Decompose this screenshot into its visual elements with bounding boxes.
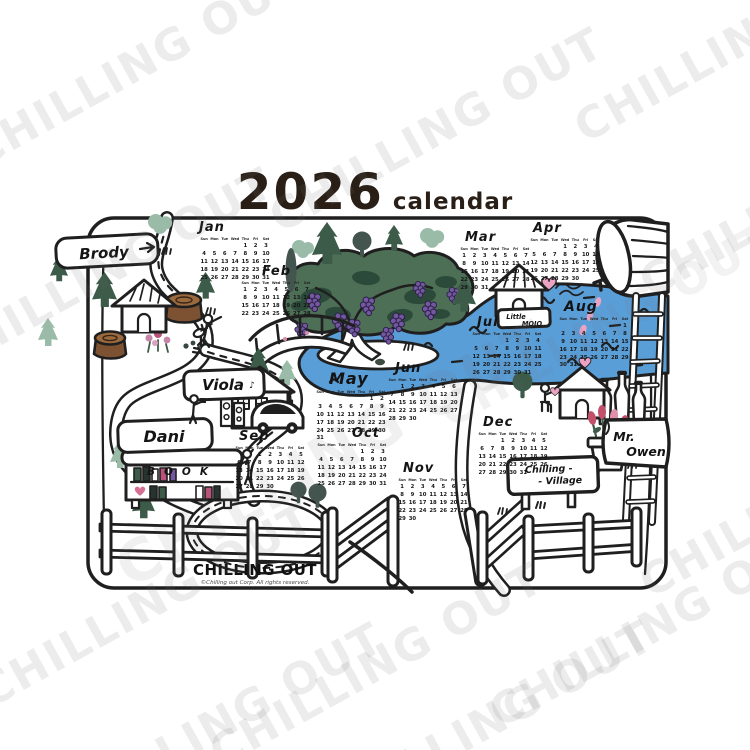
calendar-nov: Nov SunMonTueWedThuFriSat123456789101112… [397, 461, 469, 523]
day-cell: 12 [529, 260, 539, 268]
day-cell: 3 [261, 243, 271, 251]
day-cell: 5 [209, 251, 219, 259]
day-cell: 2 [512, 338, 522, 346]
day-cell: 12 [438, 392, 448, 400]
day-cell: 21 [487, 462, 497, 470]
month-grid: SunMonTueWedThuFriSat1234567891011121314… [387, 378, 459, 423]
day-cell: 27 [449, 408, 459, 416]
day-cell: 20 [477, 462, 487, 470]
day-cell: 5 [438, 484, 448, 492]
book-store [122, 450, 242, 508]
month-grid: SunMonTueWedThuFriSat1234567891011121314… [477, 432, 549, 477]
day-cell: 5 [500, 253, 510, 261]
month-grid: SunMonTueWedThuFriSat1234567891011121314… [234, 446, 306, 491]
day-cell: 3 [568, 331, 578, 339]
speakers [221, 398, 244, 426]
day-cell [599, 362, 609, 370]
day-cell: 10 [378, 457, 388, 465]
day-cell: 16 [377, 412, 387, 420]
day-cell: 10 [261, 295, 271, 303]
day-cell: 2 [558, 331, 568, 339]
day-cell: 10 [580, 252, 590, 260]
day-cell: 14 [347, 465, 357, 473]
day-cell: 25 [428, 508, 438, 516]
day-cell: 26 [529, 276, 539, 284]
day-cell: 4 [316, 457, 326, 465]
day-cell: 16 [570, 260, 580, 268]
sign-mr-owen-line1: Mr. [613, 429, 635, 444]
day-cell: 14 [487, 454, 497, 462]
day-cell [529, 244, 539, 252]
day-cell: 23 [265, 476, 275, 484]
month-title: Oct [352, 426, 388, 441]
day-cell: 24 [480, 277, 490, 285]
sign-book-label: BOOK [147, 466, 217, 478]
day-cell: 29 [498, 470, 508, 478]
day-cell: 11 [591, 252, 601, 260]
day-cell: 22 [502, 362, 512, 370]
day-cell: 13 [220, 259, 230, 267]
day-cell: 21 [230, 267, 240, 275]
day-cell: 18 [271, 303, 281, 311]
month-grid: SunMonTueWedThuFriSat1234567891011121314… [240, 281, 312, 319]
day-cell [230, 243, 240, 251]
day-cell: 1 [397, 384, 407, 392]
day-cell: 18 [579, 347, 589, 355]
day-cell: 15 [357, 465, 367, 473]
day-cell: 3 [480, 253, 490, 261]
day-cell: 1 [255, 452, 265, 460]
day-cell: 29 [620, 355, 630, 363]
day-cell: 5 [281, 287, 291, 295]
day-cell: 5 [326, 457, 336, 465]
month-grid: SunMonTueWedThuFriSat1234567891011121314… [397, 478, 469, 523]
day-cell: 13 [346, 412, 356, 420]
day-cell: 30 [558, 362, 568, 370]
day-cell: 24 [580, 268, 590, 276]
day-cell: 2 [250, 287, 260, 295]
day-cell: 4 [490, 253, 500, 261]
day-cell: 11 [428, 492, 438, 500]
day-cell [448, 516, 458, 524]
day-cell: 30 [265, 484, 275, 492]
day-cell: 19 [539, 454, 549, 462]
calendar-jun: Jun SunMonTueWedThuFriSat123456789101112… [387, 361, 459, 423]
day-cell: 17 [480, 269, 490, 277]
day-cell: 29 [502, 370, 512, 378]
calendar-aug: Aug SunMonTueWedThuFriSat123456789101112… [558, 299, 630, 370]
day-cell [428, 516, 438, 524]
day-cell: 19 [438, 500, 448, 508]
day-cell: 14 [609, 339, 619, 347]
day-cell: 21 [347, 473, 357, 481]
day-cell: 9 [367, 457, 377, 465]
day-cell: 21 [550, 268, 560, 276]
day-cell: 31 [522, 370, 532, 378]
day-cell: 15 [502, 354, 512, 362]
day-cell: 24 [261, 311, 271, 319]
day-cell: 17 [568, 347, 578, 355]
day-cell: 28 [459, 508, 469, 516]
day-cell: 4 [325, 404, 335, 412]
day-cell: 6 [539, 252, 549, 260]
day-cell: 30 [407, 516, 417, 524]
day-cell: 4 [591, 244, 601, 252]
day-cell: 13 [337, 465, 347, 473]
day-cell: 26 [589, 355, 599, 363]
day-cell: 31 [480, 285, 490, 293]
day-cell: 14 [302, 295, 312, 303]
day-cell: 6 [337, 457, 347, 465]
day-cell: 4 [533, 338, 543, 346]
day-cell: 12 [471, 354, 481, 362]
day-cell [609, 323, 619, 331]
day-cell: 20 [448, 500, 458, 508]
day-cell: 23 [250, 311, 260, 319]
day-cell [589, 323, 599, 331]
day-cell: 30 [570, 276, 580, 284]
day-cell: 8 [620, 331, 630, 339]
day-cell: 9 [570, 252, 580, 260]
day-cell: 13 [510, 261, 520, 269]
day-cell: 14 [244, 468, 254, 476]
day-cell: 8 [240, 295, 250, 303]
day-cell: 17 [522, 354, 532, 362]
day-cell: 15 [366, 412, 376, 420]
calendar-dec: Dec SunMonTueWedThuFriSat123456789101112… [477, 415, 549, 477]
day-cell: 12 [500, 261, 510, 269]
day-cell: 28 [302, 311, 312, 319]
day-cell: 17 [275, 468, 285, 476]
day-cell: 7 [302, 287, 312, 295]
day-cell: 25 [271, 311, 281, 319]
day-cell: 9 [250, 251, 260, 259]
day-cell: 7 [356, 404, 366, 412]
day-cell: 3 [418, 484, 428, 492]
day-cell: 14 [356, 412, 366, 420]
day-cell: 11 [579, 339, 589, 347]
day-cell: 27 [539, 276, 549, 284]
day-cell: 27 [337, 481, 347, 489]
day-cell: 7 [347, 457, 357, 465]
day-cell: 2 [408, 384, 418, 392]
day-cell: 25 [591, 268, 601, 276]
day-cell [539, 470, 549, 478]
day-cell [234, 452, 244, 460]
day-cell: 25 [316, 481, 326, 489]
day-cell [550, 244, 560, 252]
day-cell: 13 [539, 260, 549, 268]
day-cell: 26 [471, 370, 481, 378]
day-cell: 16 [265, 468, 275, 476]
day-cell: 9 [512, 346, 522, 354]
day-cell: 6 [448, 484, 458, 492]
day-cell: 23 [367, 473, 377, 481]
day-cell: 21 [492, 362, 502, 370]
day-cell: 7 [609, 331, 619, 339]
day-cell: 3 [522, 338, 532, 346]
day-cell [347, 449, 357, 457]
day-cell [356, 396, 366, 404]
day-cell [326, 449, 336, 457]
calendar-poster-page: Brody Viola Dani BOOK Little MOJO Mr. Ow… [0, 0, 750, 750]
day-cell: 28 [492, 370, 502, 378]
day-cell: 6 [477, 446, 487, 454]
day-cell: 5 [336, 404, 346, 412]
day-cell: 3 [261, 287, 271, 295]
day-cell: 17 [261, 303, 271, 311]
calendar-feb: Feb SunMonTueWedThuFriSat123456789101112… [240, 264, 312, 319]
day-cell [510, 285, 520, 293]
day-cell [336, 396, 346, 404]
day-cell: 19 [296, 468, 306, 476]
day-cell: 19 [589, 347, 599, 355]
day-cell: 16 [250, 303, 260, 311]
month-title: Jun [395, 361, 459, 376]
day-cell: 1 [560, 244, 570, 252]
month-title: Mar [465, 230, 531, 245]
day-cell: 25 [490, 277, 500, 285]
day-cell: 26 [281, 311, 291, 319]
day-cell [418, 516, 428, 524]
day-cell [459, 516, 469, 524]
day-cell: 25 [528, 462, 538, 470]
day-cell: 20 [599, 347, 609, 355]
day-cell: 9 [408, 392, 418, 400]
day-cell [580, 276, 590, 284]
day-cell: 7 [459, 484, 469, 492]
day-cell [477, 438, 487, 446]
day-cell: 5 [438, 384, 448, 392]
day-cell: 10 [261, 251, 271, 259]
day-cell: 19 [471, 362, 481, 370]
day-cell: 7 [387, 392, 397, 400]
day-cell: 6 [234, 460, 244, 468]
day-cell [539, 244, 549, 252]
calendar-apr: Apr SunMonTueWedThuFriSat123456789101112… [529, 221, 601, 283]
day-cell: 3 [418, 384, 428, 392]
day-cell: 7 [550, 252, 560, 260]
day-cell: 5 [529, 252, 539, 260]
day-cell: 10 [315, 412, 325, 420]
day-cell: 6 [346, 404, 356, 412]
day-cell [244, 452, 254, 460]
day-cell [609, 362, 619, 370]
day-cell: 29 [255, 484, 265, 492]
day-cell: 22 [560, 268, 570, 276]
day-cell: 15 [498, 454, 508, 462]
day-cell: 10 [568, 339, 578, 347]
day-cell: 9 [469, 261, 479, 269]
day-cell: 2 [407, 484, 417, 492]
day-cell [579, 323, 589, 331]
day-cell: 1 [240, 243, 250, 251]
day-cell: 8 [357, 457, 367, 465]
day-cell: 6 [449, 384, 459, 392]
day-cell: 11 [199, 259, 209, 267]
day-cell: 21 [302, 303, 312, 311]
day-cell: 12 [438, 492, 448, 500]
day-cell: 15 [620, 339, 630, 347]
day-cell: 27 [291, 311, 301, 319]
day-cell: 11 [271, 295, 281, 303]
day-cell: 22 [620, 347, 630, 355]
day-cell: 11 [325, 412, 335, 420]
day-cell: 22 [357, 473, 367, 481]
day-cell: 26 [500, 277, 510, 285]
day-cell: 12 [336, 412, 346, 420]
day-cell: 3 [580, 244, 590, 252]
month-title: May [329, 369, 387, 388]
day-cell: 16 [408, 400, 418, 408]
day-cell: 6 [481, 346, 491, 354]
day-cell: 16 [508, 454, 518, 462]
day-cell: 18 [490, 269, 500, 277]
day-cell: 1 [498, 438, 508, 446]
day-cell: 15 [397, 400, 407, 408]
month-grid: SunMonTueWedThuFriSat1234567891011121314… [316, 443, 388, 488]
day-cell: 4 [428, 484, 438, 492]
day-cell: 2 [570, 244, 580, 252]
day-cell: 7 [492, 346, 502, 354]
day-cell: 23 [408, 408, 418, 416]
month-title: Dec [483, 415, 549, 430]
day-cell: 8 [498, 446, 508, 454]
day-cell: 26 [438, 408, 448, 416]
title-year: 2026 [237, 163, 384, 221]
day-cell: 10 [418, 392, 428, 400]
day-cell: 18 [428, 400, 438, 408]
day-cell: 2 [265, 452, 275, 460]
day-cell: 1 [357, 449, 367, 457]
day-cell: 26 [539, 462, 549, 470]
day-cell: 4 [528, 438, 538, 446]
day-cell: 18 [316, 473, 326, 481]
day-cell: 22 [240, 311, 250, 319]
day-cell: 18 [199, 267, 209, 275]
day-cell: 20 [337, 473, 347, 481]
day-cell: 28 [550, 276, 560, 284]
day-cell: 22 [397, 408, 407, 416]
day-cell: 6 [291, 287, 301, 295]
day-cell: 8 [459, 261, 469, 269]
day-cell: 24 [378, 473, 388, 481]
day-cell: 10 [522, 346, 532, 354]
day-cell: 31 [568, 362, 578, 370]
day-cell: 21 [459, 500, 469, 508]
day-cell [500, 285, 510, 293]
day-cell: 6 [599, 331, 609, 339]
day-cell: 25 [199, 275, 209, 283]
day-cell: 16 [512, 354, 522, 362]
day-cell: 1 [620, 323, 630, 331]
day-cell: 23 [407, 508, 417, 516]
day-cell: 30 [408, 416, 418, 424]
day-cell: 13 [234, 468, 244, 476]
day-cell: 16 [367, 465, 377, 473]
day-cell: 30 [508, 470, 518, 478]
day-cell: 18 [285, 468, 295, 476]
day-cell: 12 [209, 259, 219, 267]
day-cell: 3 [275, 452, 285, 460]
day-cell: 13 [599, 339, 609, 347]
day-cell: 30 [367, 481, 377, 489]
day-cell: 13 [481, 354, 491, 362]
day-cell: 18 [428, 500, 438, 508]
day-cell: 30 [469, 285, 479, 293]
day-cell: 4 [285, 452, 295, 460]
day-cell: 20 [220, 267, 230, 275]
brand-logo: CHILLING OUT [150, 561, 360, 579]
day-cell [346, 396, 356, 404]
day-cell: 17 [518, 454, 528, 462]
month-grid: SunMonTueWedThuFriSat1234567891011121314… [529, 238, 601, 283]
day-cell: 16 [407, 500, 417, 508]
day-cell: 23 [512, 362, 522, 370]
day-cell: 13 [291, 295, 301, 303]
day-cell [199, 243, 209, 251]
day-cell: 2 [469, 253, 479, 261]
day-cell: 1 [397, 484, 407, 492]
day-cell: 21 [387, 408, 397, 416]
day-cell: 25 [533, 362, 543, 370]
day-cell: 5 [589, 331, 599, 339]
day-cell [492, 338, 502, 346]
day-cell: 26 [438, 508, 448, 516]
day-cell: 24 [418, 508, 428, 516]
day-cell [533, 370, 543, 378]
day-cell: 29 [397, 516, 407, 524]
day-cell: 23 [558, 355, 568, 363]
day-cell: 28 [387, 416, 397, 424]
day-cell: 17 [418, 400, 428, 408]
day-cell: 28 [347, 481, 357, 489]
day-cell: 19 [500, 269, 510, 277]
day-cell: 14 [459, 492, 469, 500]
day-cell: 14 [387, 400, 397, 408]
day-cell: 3 [378, 449, 388, 457]
day-cell [591, 276, 601, 284]
day-cell [589, 362, 599, 370]
day-cell: 19 [438, 400, 448, 408]
day-cell [316, 449, 326, 457]
music-note-icon: ♪ [249, 381, 255, 391]
sign-brody-label: Brody [79, 243, 131, 264]
day-cell [387, 384, 397, 392]
day-cell [325, 396, 335, 404]
day-cell: 6 [510, 253, 520, 261]
day-cell: 15 [397, 500, 407, 508]
day-cell: 20 [539, 268, 549, 276]
day-cell: 22 [397, 508, 407, 516]
day-cell: 28 [487, 470, 497, 478]
day-cell: 20 [510, 269, 520, 277]
day-cell: 21 [609, 347, 619, 355]
day-cell: 11 [316, 465, 326, 473]
day-cell [449, 416, 459, 424]
day-cell: 29 [397, 416, 407, 424]
month-title: Apr [533, 221, 601, 236]
day-cell: 5 [539, 438, 549, 446]
day-cell: 15 [240, 303, 250, 311]
month-grid: SunMonTueWedThuFriSat1234567891011121314… [459, 247, 531, 292]
day-cell: 14 [492, 354, 502, 362]
day-cell [337, 449, 347, 457]
title-subtitle: calendar [393, 189, 513, 215]
day-cell: 10 [275, 460, 285, 468]
day-cell: 27 [234, 484, 244, 492]
day-cell: 13 [448, 492, 458, 500]
